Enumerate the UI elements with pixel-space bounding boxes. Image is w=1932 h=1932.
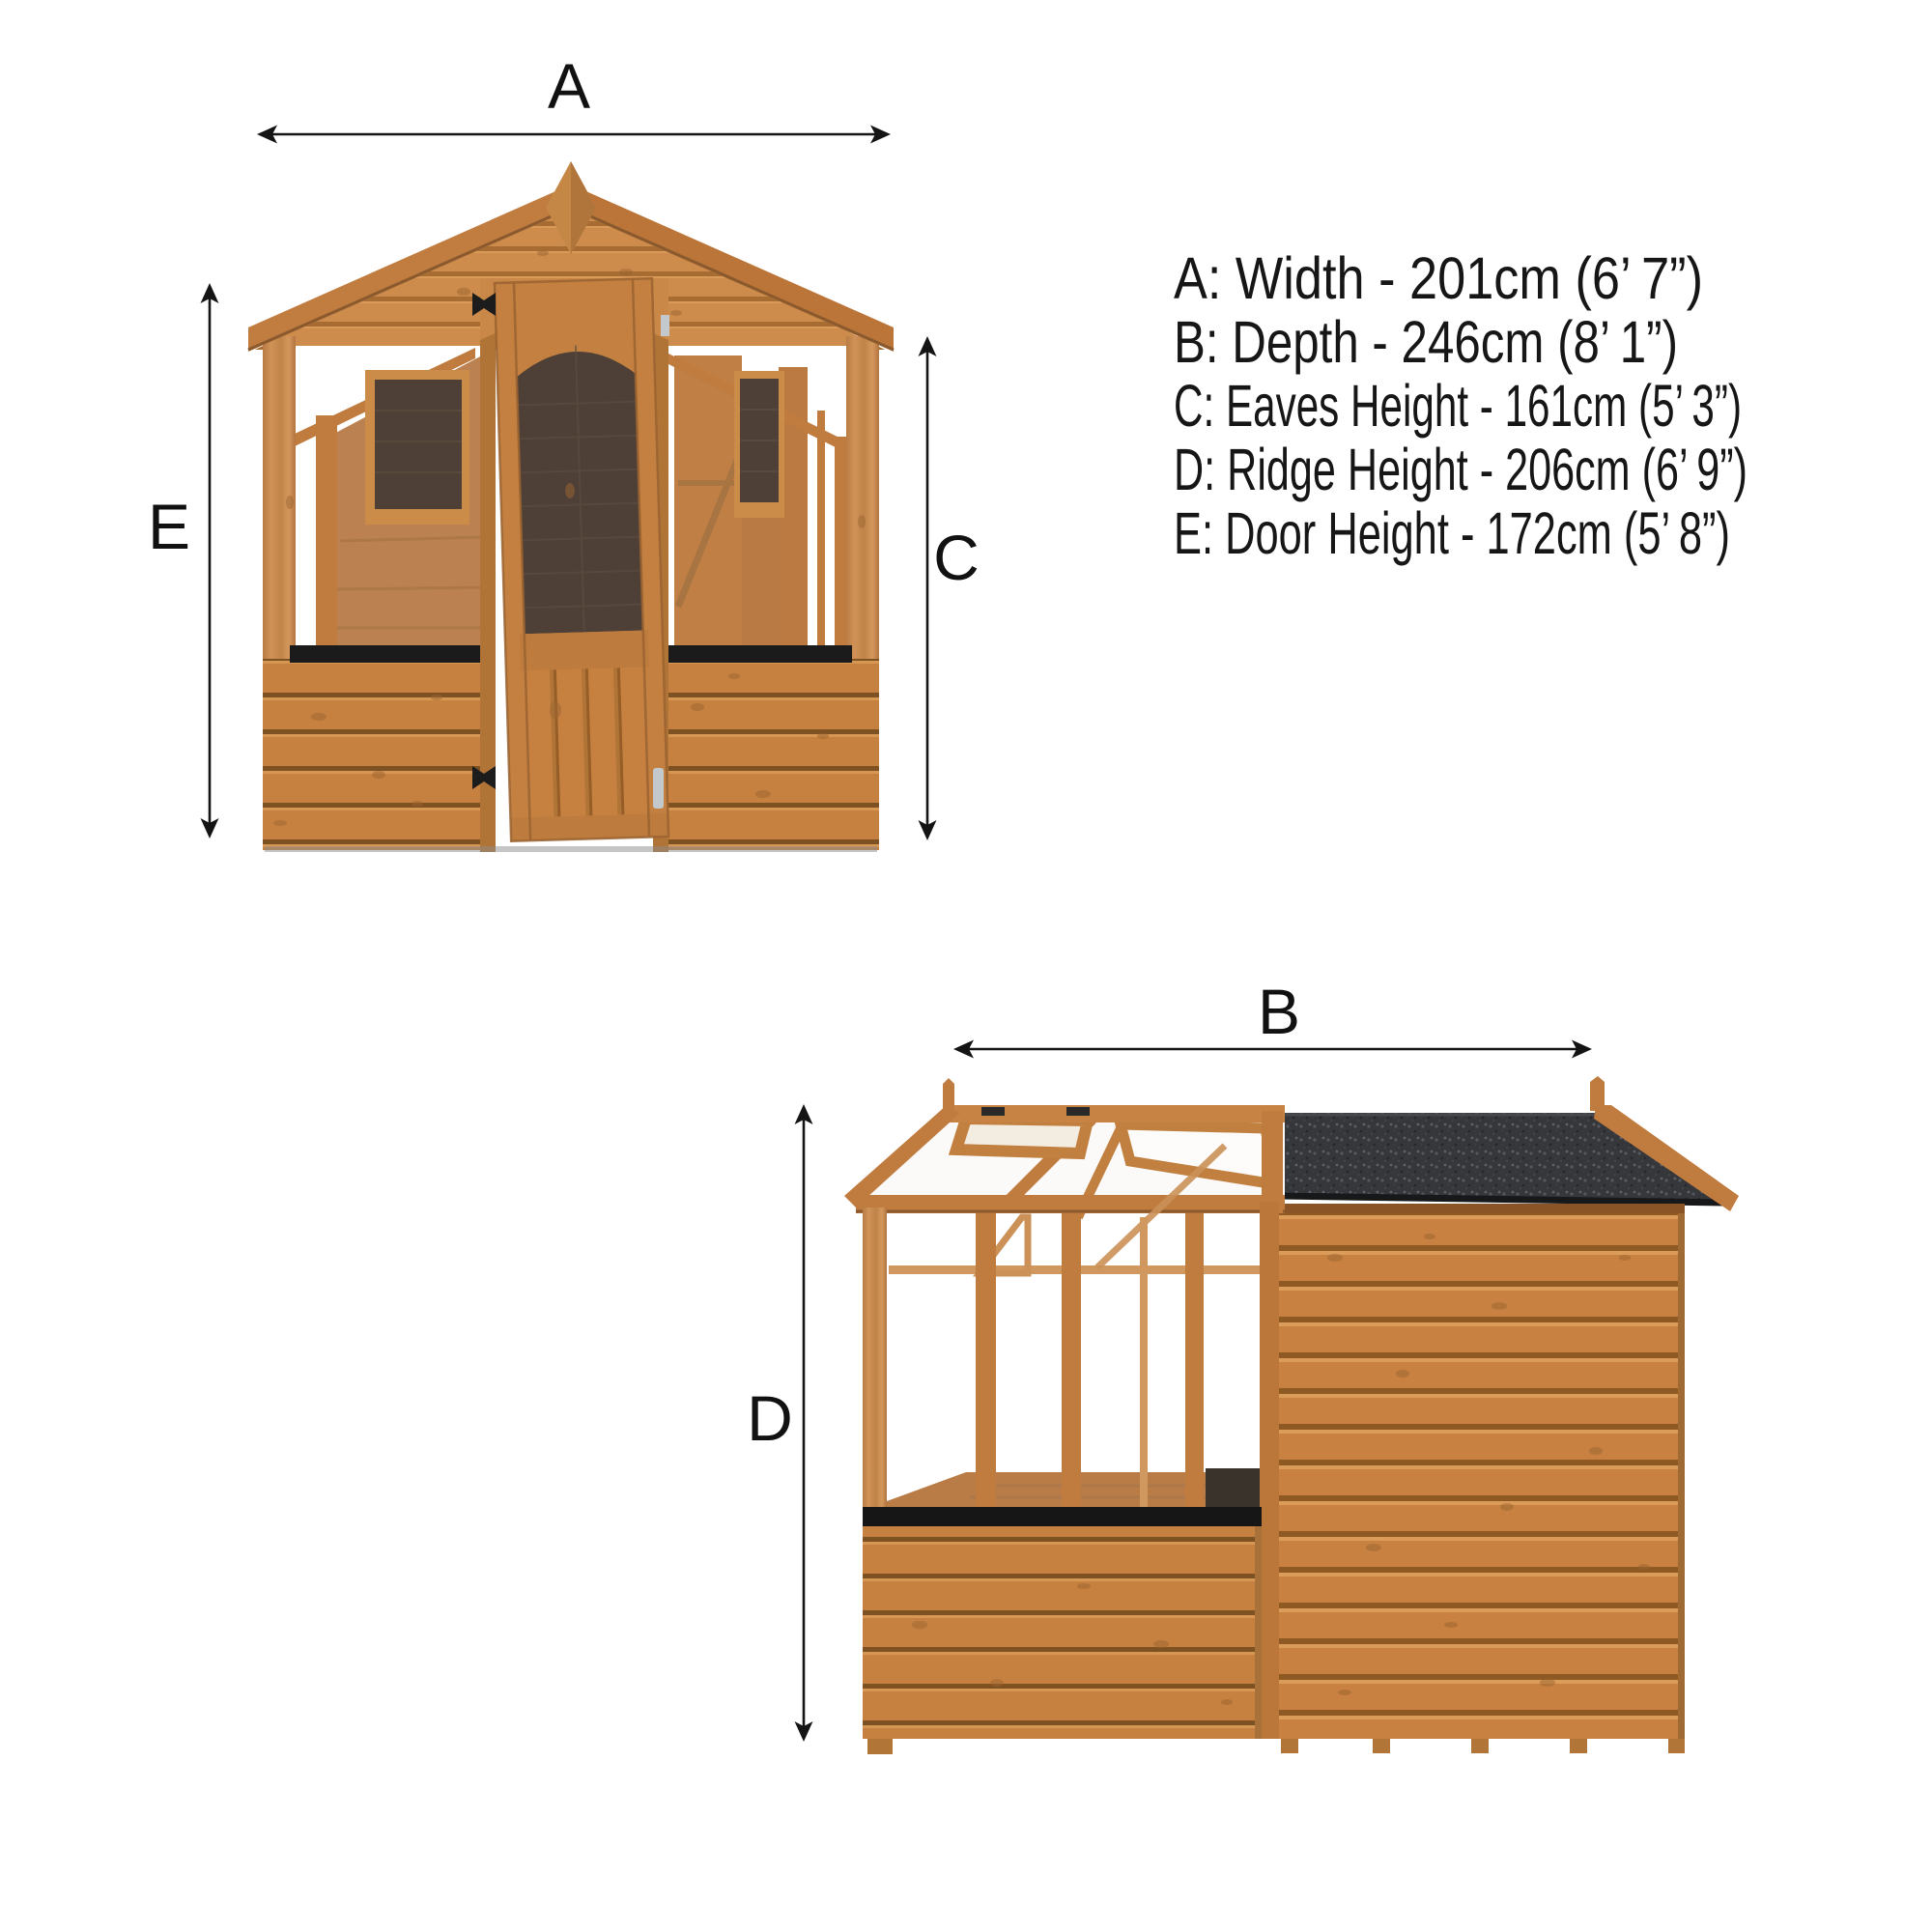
svg-text:D: D <box>747 1382 793 1454</box>
svg-text:B: Depth - 246cm (8’ 1”): B: Depth - 246cm (8’ 1”) <box>1174 309 1678 375</box>
svg-text:B: B <box>1258 976 1300 1047</box>
svg-text:A: Width - 201cm (6’ 7”): A: Width - 201cm (6’ 7”) <box>1174 245 1703 311</box>
svg-text:A: A <box>548 50 590 122</box>
svg-text:C: Eaves Height - 161cm (5’ 3”: C: Eaves Height - 161cm (5’ 3”) <box>1174 373 1742 439</box>
svg-text:C: C <box>933 522 980 593</box>
svg-text:E: Door Height - 172cm (5’ 8”): E: Door Height - 172cm (5’ 8”) <box>1174 500 1730 566</box>
svg-text:E: E <box>148 491 190 562</box>
svg-text:D: Ridge Height - 206cm (6’ 9”: D: Ridge Height - 206cm (6’ 9”) <box>1174 437 1747 502</box>
